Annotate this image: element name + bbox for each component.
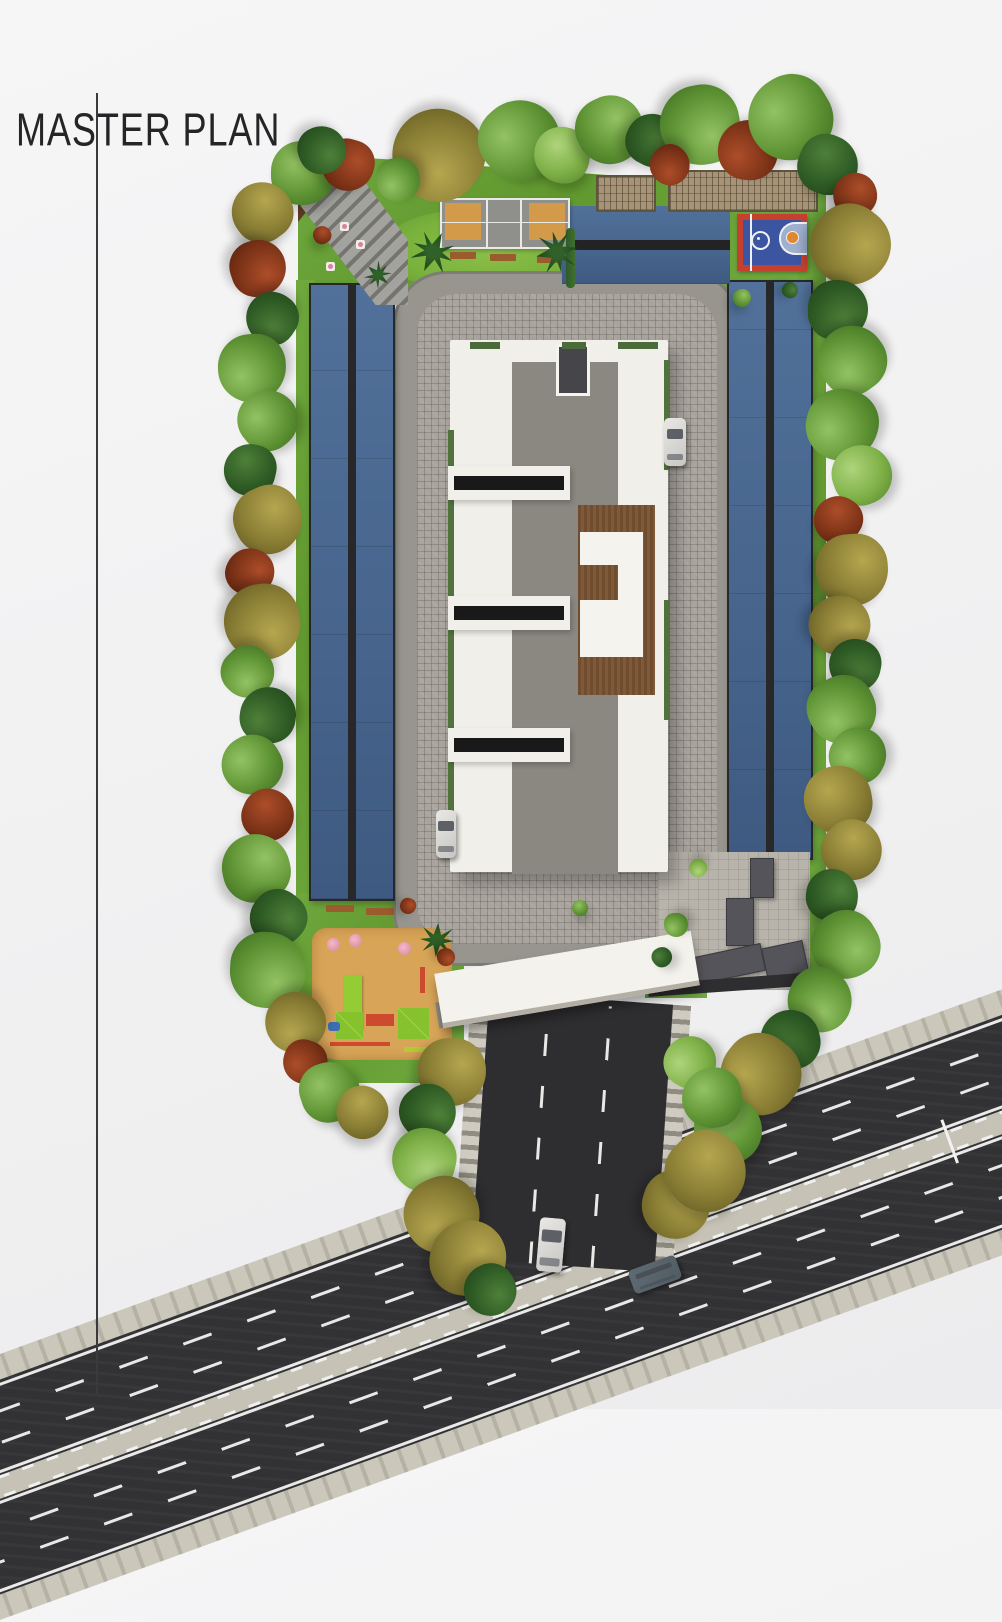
tree	[217, 539, 282, 604]
roof-garden	[470, 342, 500, 349]
court-net-line	[442, 222, 568, 223]
central-apartment-building	[450, 340, 668, 872]
corridor-slot	[454, 606, 564, 620]
parking-roof-strip	[729, 282, 766, 858]
tree	[654, 79, 747, 172]
tree	[828, 168, 882, 222]
practice-net-long	[668, 170, 818, 212]
clubhouse-roof	[618, 565, 643, 600]
parking-roof-strip	[311, 285, 348, 899]
building-corridor	[448, 596, 570, 630]
roof-garden	[618, 342, 658, 349]
planter	[356, 240, 365, 249]
play-canopy	[398, 1008, 429, 1039]
mushroom-table	[327, 938, 340, 951]
fitness-post	[420, 967, 425, 993]
court-line	[486, 200, 488, 247]
mushroom-table	[349, 934, 362, 947]
tree	[732, 60, 847, 175]
multipurpose-court	[440, 198, 570, 249]
edge-planting	[664, 360, 670, 470]
covered-parking-north	[562, 206, 730, 284]
bench	[450, 252, 476, 259]
tree	[222, 232, 293, 303]
spring-rider	[328, 1022, 340, 1031]
tree	[219, 439, 281, 501]
roof-garden	[562, 342, 586, 349]
mushroom-table	[398, 942, 411, 955]
planter	[326, 262, 335, 271]
transformer-unit	[750, 858, 774, 898]
tree	[219, 579, 305, 665]
tree	[385, 1121, 463, 1199]
corridor-slot	[454, 738, 564, 752]
seesaw	[404, 1047, 430, 1052]
planter	[340, 222, 349, 231]
page-title: MASTER PLAN	[16, 104, 280, 157]
building-corridor	[448, 728, 570, 762]
tree	[211, 635, 285, 709]
tree	[236, 683, 299, 746]
tree	[824, 634, 886, 696]
practice-net-small	[596, 175, 656, 212]
corridor-slot	[454, 476, 564, 490]
tree	[617, 105, 687, 175]
basketball-center-dot	[757, 237, 760, 240]
covered-parking-left	[309, 283, 395, 901]
bench	[537, 256, 561, 263]
tree	[824, 437, 901, 514]
court-line	[520, 200, 522, 247]
clubhouse-roof	[580, 600, 643, 657]
clubhouse-roof	[580, 532, 643, 565]
canopy-seam	[562, 240, 730, 250]
tree	[389, 1073, 468, 1152]
play-bridge	[366, 1014, 394, 1026]
dg-set-unit	[726, 898, 754, 946]
entry-road-asphalt	[471, 992, 673, 1272]
tree	[211, 724, 293, 806]
play-canopy	[336, 1012, 363, 1039]
building-corridor	[448, 466, 570, 500]
tree	[326, 1076, 398, 1148]
tree	[820, 717, 896, 793]
hedge-screen	[566, 228, 575, 288]
title-rule	[96, 93, 98, 1393]
tree	[215, 827, 297, 909]
swing-frame	[330, 1042, 390, 1046]
basketball-center-circle	[751, 231, 770, 250]
parking-roof-strip	[356, 285, 393, 899]
entry-road	[453, 991, 691, 1274]
tree	[216, 332, 287, 403]
basketball-half-court	[737, 214, 807, 271]
edge-planting	[664, 600, 670, 720]
basketball-hoop-icon	[786, 231, 799, 244]
playground-bench	[326, 905, 354, 912]
tree	[565, 85, 656, 176]
bench	[490, 254, 516, 261]
covered-parking-right	[727, 280, 813, 860]
tree	[220, 170, 304, 254]
building-core-notch	[556, 344, 590, 396]
playground-bench	[366, 908, 394, 915]
tree	[234, 781, 303, 850]
parking-roof-strip	[774, 282, 811, 858]
